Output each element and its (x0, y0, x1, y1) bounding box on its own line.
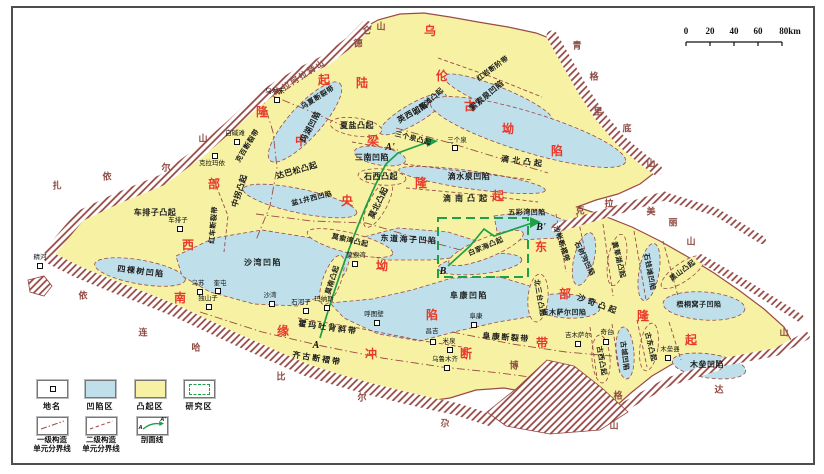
legend-label: 单元分界线 (74, 444, 128, 453)
first-order-boundary-swatch (37, 417, 68, 435)
second-order-boundary-swatch (86, 417, 117, 435)
section-line-swatch: A A' (137, 417, 168, 435)
scale-bar: 0 20 40 60 80km (680, 26, 820, 52)
legend-label: 地名 (25, 401, 79, 412)
legend-item-study-area: 研究区 (172, 380, 226, 412)
scale-tick-label: 80km (779, 26, 801, 36)
scale-tick-label: 40 (730, 26, 739, 36)
legend-section-a: A (139, 425, 143, 431)
placename-swatch (37, 380, 68, 398)
legend-item-placename: 地名 (25, 380, 79, 412)
legend-label: 凹陷区 (73, 401, 127, 412)
uplift-swatch (135, 380, 166, 398)
legend-label: 二级构造 (74, 435, 128, 444)
legend-item-uplift: 凸起区 (123, 380, 177, 412)
legend-label: 一级构造 (25, 435, 79, 444)
legend-section-a-prime: A' (160, 417, 165, 423)
depression-swatch (85, 380, 116, 398)
legend-label: 单元分界线 (25, 444, 79, 453)
map-canvas: 西部隆起乌伦古坳陷陆梁隆起中央坳陷东部隆起南缘冲断带车排子凸起中拐凸起红车断裂带… (0, 0, 824, 474)
legend-label: 凸起区 (123, 401, 177, 412)
legend-item-first-order-boundary: 一级构造 单元分界线 (25, 417, 79, 454)
scale-tick-label: 0 (684, 26, 689, 36)
legend-label: 剖面线 (125, 435, 179, 444)
mountain-blob-west (28, 276, 52, 296)
legend-item-depression: 凹陷区 (73, 380, 127, 412)
mountain-band-east1 (664, 196, 762, 240)
legend-item-section-line: A A' 剖面线 (125, 417, 179, 444)
legend-item-second-order-boundary: 二级构造 单元分界线 (74, 417, 128, 454)
scale-tick-label: 20 (706, 26, 715, 36)
legend-label: 研究区 (172, 401, 226, 412)
study-area-swatch (184, 380, 215, 398)
placename-symbol (50, 386, 56, 392)
scale-tick-label: 60 (754, 26, 763, 36)
